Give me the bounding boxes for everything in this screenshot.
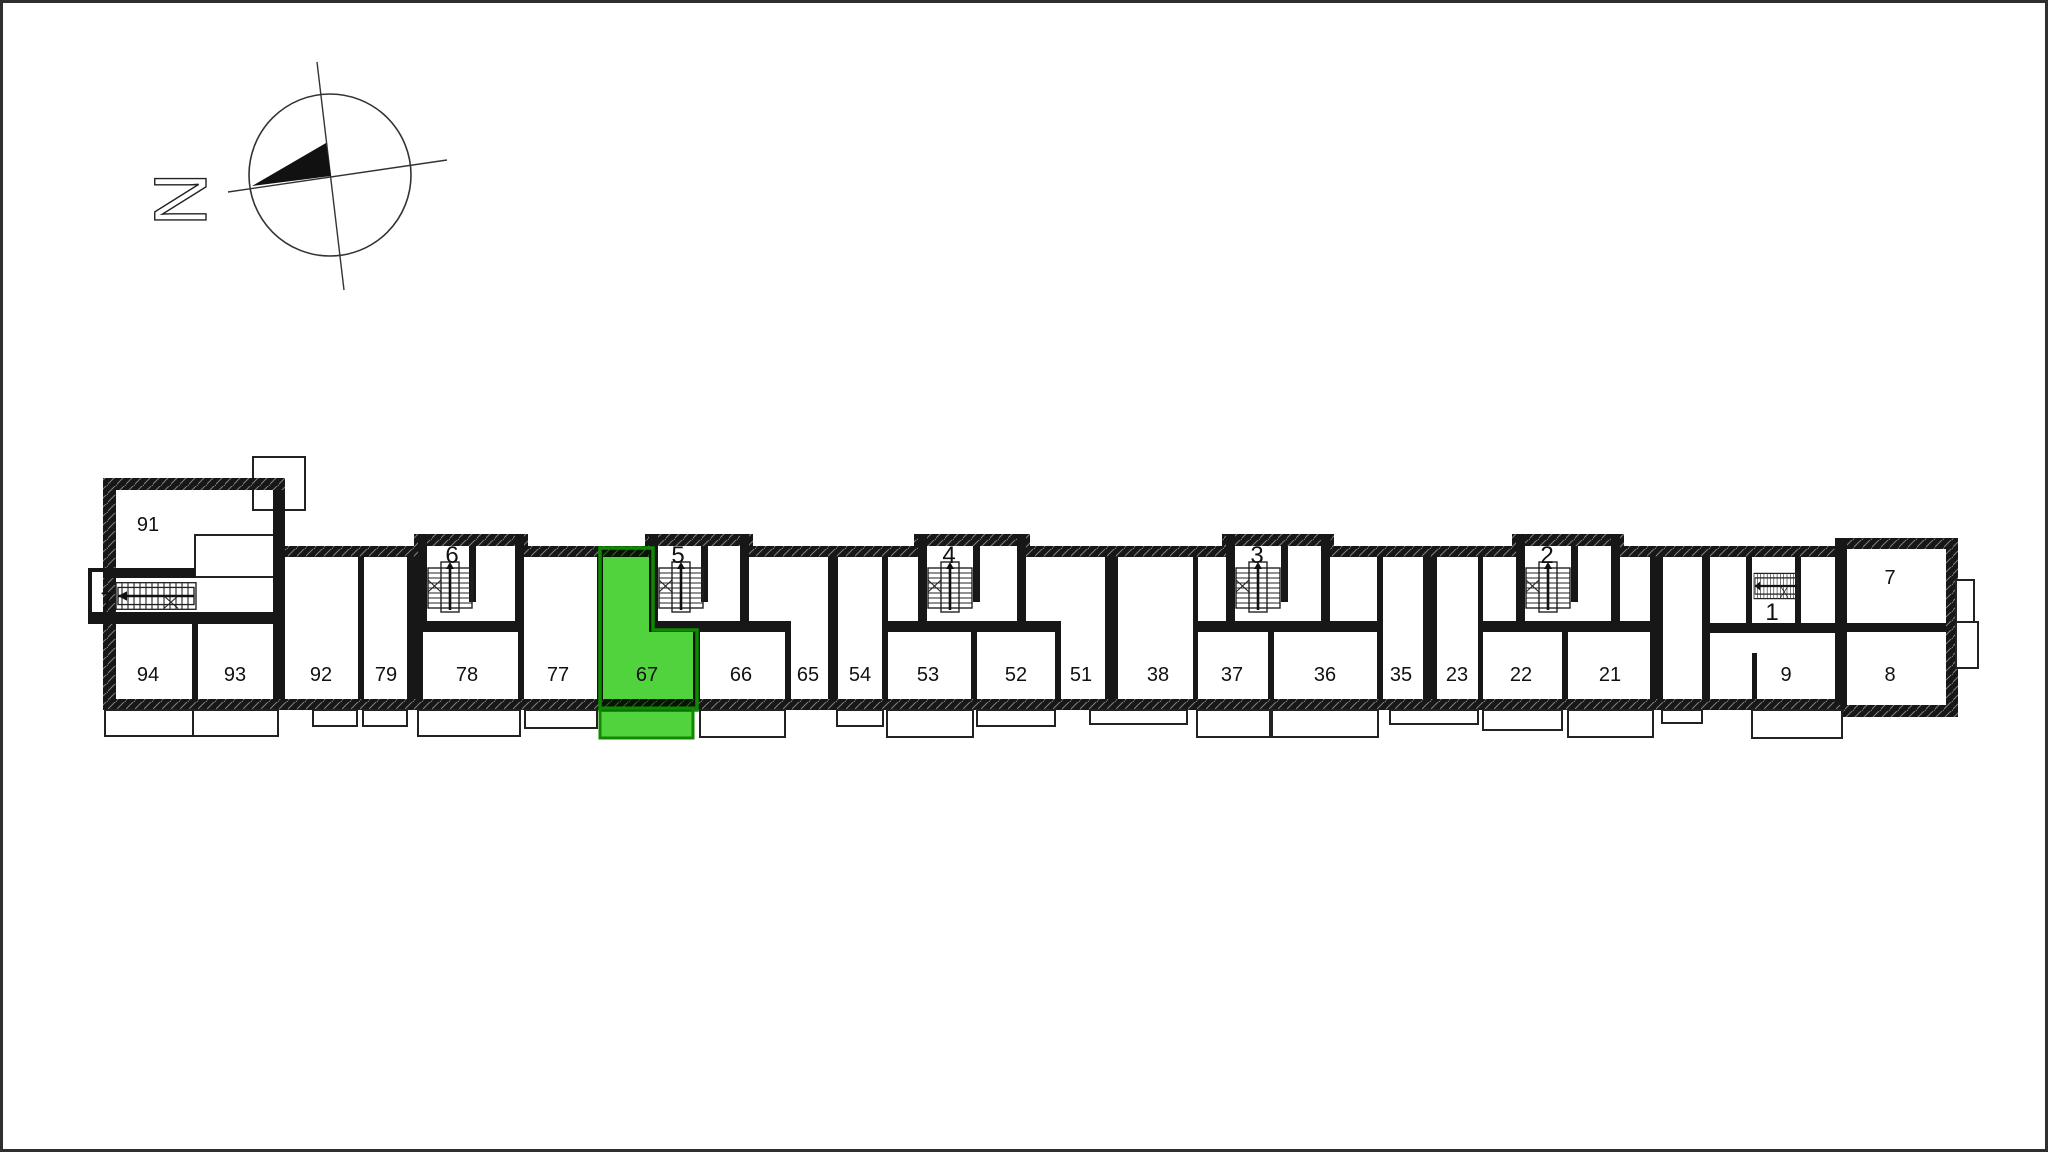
unit-label-91: 91 bbox=[137, 514, 159, 536]
annex-outlines bbox=[195, 457, 305, 577]
entrance-label-4: 4 bbox=[942, 542, 955, 569]
unit-label-9: 9 bbox=[1780, 664, 1791, 686]
north-arrow-icon bbox=[252, 143, 331, 186]
floorplan-drawing: N bbox=[0, 0, 2048, 1152]
unit-label-35: 35 bbox=[1390, 664, 1412, 686]
unit-label-66: 66 bbox=[730, 664, 752, 686]
unit-label-21: 21 bbox=[1599, 664, 1621, 686]
entrance-label-2: 2 bbox=[1540, 542, 1553, 569]
unit-label-67[interactable]: 67 bbox=[636, 664, 658, 686]
highlighted-unit-67[interactable] bbox=[600, 548, 697, 738]
stairs-icon bbox=[116, 583, 196, 610]
unit-label-78: 78 bbox=[456, 664, 478, 686]
stairs-icon bbox=[928, 562, 972, 612]
stairs-icon bbox=[1236, 562, 1280, 612]
unit-label-94: 94 bbox=[137, 664, 159, 686]
stair-symbols bbox=[116, 562, 1798, 612]
balconies bbox=[105, 580, 1978, 738]
compass-north-label: N bbox=[139, 173, 222, 226]
unit-label-65: 65 bbox=[797, 664, 819, 686]
unit-label-23: 23 bbox=[1446, 664, 1468, 686]
unit-label-79: 79 bbox=[375, 664, 397, 686]
unit-label-51: 51 bbox=[1070, 664, 1092, 686]
entrance-label-7: 7 bbox=[100, 588, 113, 615]
entrance-label-1: 1 bbox=[1765, 599, 1778, 626]
entrance-label-6: 6 bbox=[445, 542, 458, 569]
stairs-icon bbox=[659, 562, 703, 612]
unit-label-37: 37 bbox=[1221, 664, 1243, 686]
floorplan-page: N bbox=[0, 0, 2048, 1152]
stairs-icon bbox=[1754, 573, 1798, 598]
entrance-label-3: 3 bbox=[1250, 542, 1263, 569]
unit-label-8: 8 bbox=[1884, 664, 1895, 686]
unit-label-53: 53 bbox=[917, 664, 939, 686]
inner-room-outline bbox=[195, 535, 278, 577]
unit-label-38: 38 bbox=[1147, 664, 1169, 686]
unit-label-7: 7 bbox=[1884, 567, 1895, 589]
unit-label-93: 93 bbox=[224, 664, 246, 686]
entrance-label-5: 5 bbox=[671, 542, 684, 569]
stairs-icon bbox=[1526, 562, 1570, 612]
unit-label-36: 36 bbox=[1314, 664, 1336, 686]
unit-label-77: 77 bbox=[547, 664, 569, 686]
stairs-icon bbox=[428, 562, 472, 612]
compass: N bbox=[139, 62, 447, 290]
unit-label-22: 22 bbox=[1510, 664, 1532, 686]
unit-label-92: 92 bbox=[310, 664, 332, 686]
unit-67-balcony bbox=[600, 708, 693, 738]
unit-label-52: 52 bbox=[1005, 664, 1027, 686]
unit-label-54: 54 bbox=[849, 664, 871, 686]
